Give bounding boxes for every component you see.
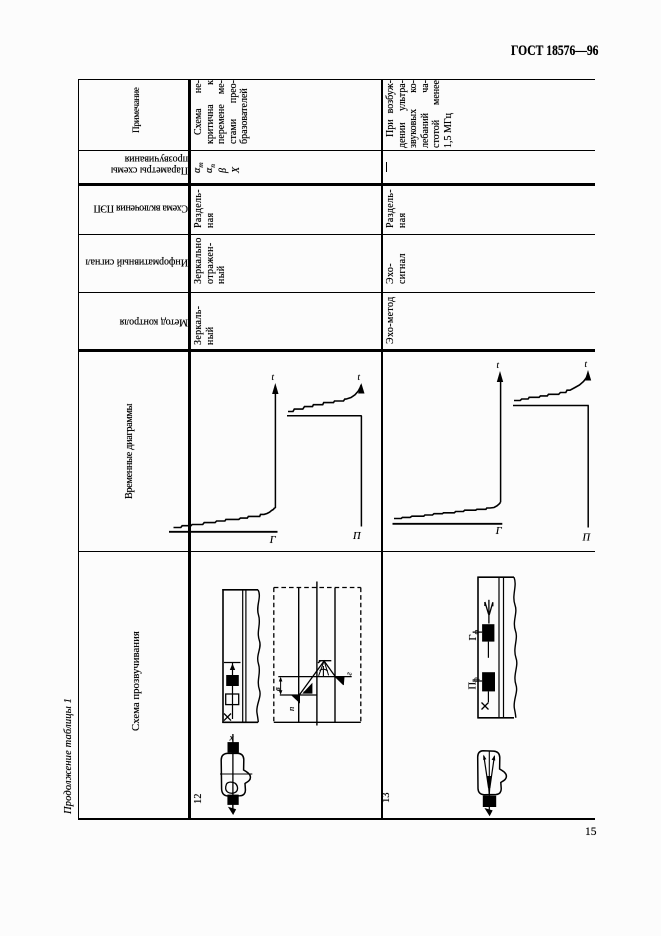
svg-text:х: х [229,734,235,744]
svg-text:t: t [585,359,588,369]
svg-text:Пф: Пф [468,677,481,690]
svg-text:Гф: Гф [468,629,481,640]
svg-text:13: 13 [381,793,392,804]
svg-text:12: 12 [193,794,204,805]
svg-text:t: t [358,372,361,382]
svg-text:t: t [272,372,275,382]
svg-text:г: г [344,672,354,676]
svg-text:П: П [582,533,592,544]
svg-text:в: в [272,687,282,691]
svg-text:П: П [352,531,362,542]
svg-text:Г: Г [495,526,503,537]
svg-text:t: t [497,360,500,370]
svg-text:Г: Г [269,535,277,546]
svg-text:п: п [286,707,296,711]
